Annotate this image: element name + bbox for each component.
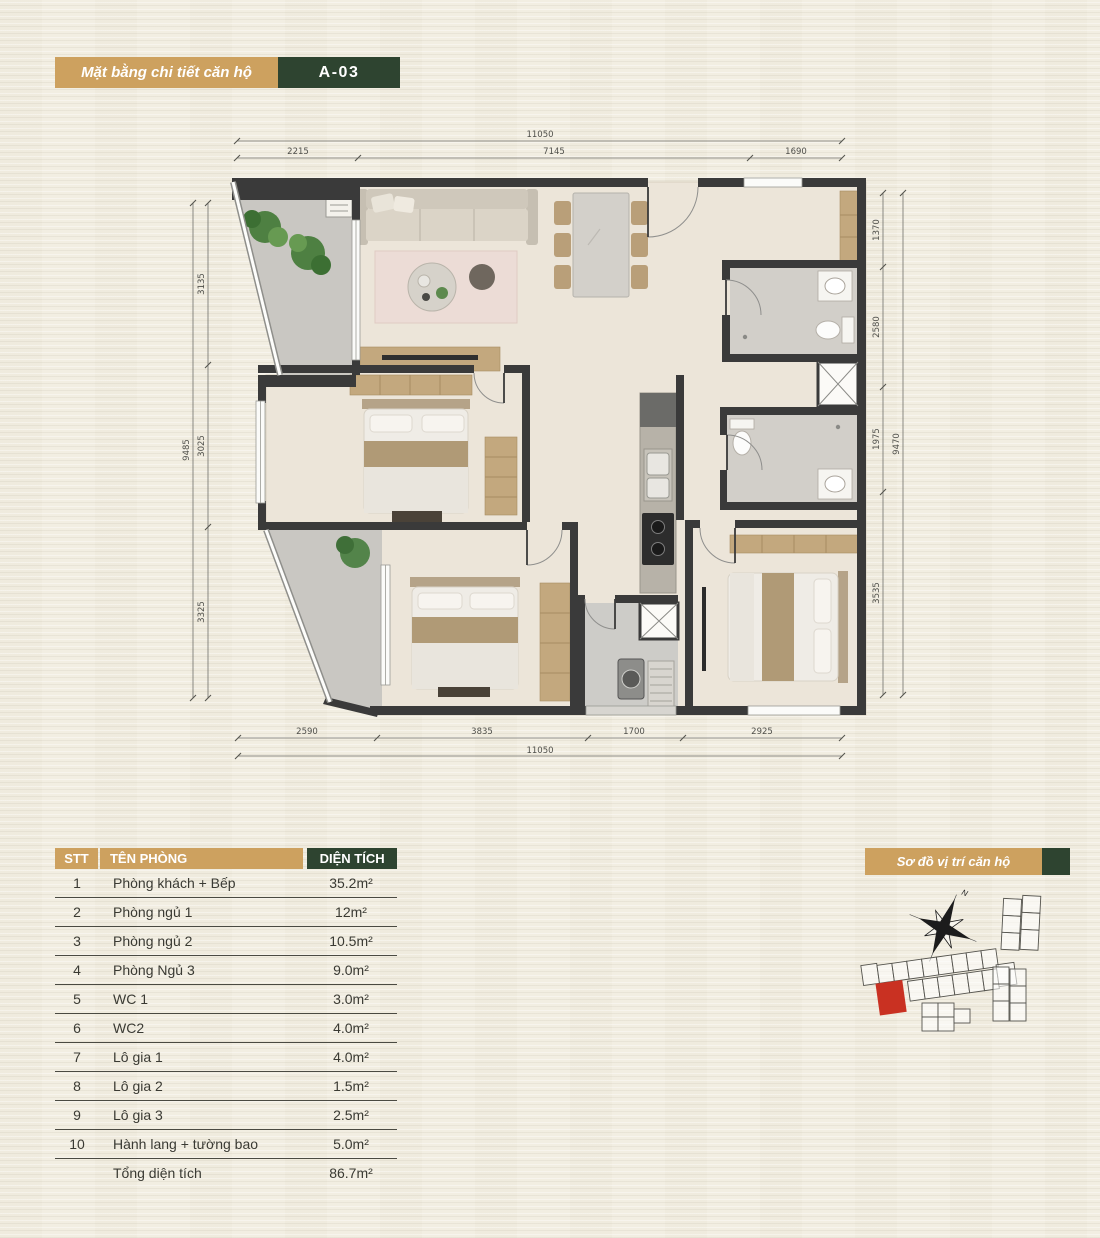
tv [382, 355, 478, 360]
dining-table [554, 193, 648, 297]
wardrobe-2 [540, 583, 570, 701]
site-map-accent [1042, 848, 1070, 875]
dim-bottom-3: 1700 [623, 727, 645, 737]
side-table [469, 264, 495, 290]
building-center [922, 1003, 970, 1031]
table-row: 8Lô gia 21.5m² [55, 1072, 397, 1101]
bedroom-2-furniture [410, 577, 570, 701]
total-label: Tổng diện tích [99, 1165, 305, 1181]
dim-top-1: 2215 [287, 147, 309, 157]
dim-right-4: 3535 [872, 582, 882, 604]
dim-bottom-4: 2925 [751, 727, 773, 737]
table-row: 3Phòng ngủ 210.5m² [55, 927, 397, 956]
kitchen [640, 393, 676, 593]
floor-plan: 11050 2215 7145 1690 2590 3835 1700 2925… [170, 125, 920, 775]
dim-right-2: 2580 [872, 316, 882, 338]
dim-left-2: 3025 [197, 435, 207, 457]
dim-right-total: 9470 [892, 433, 902, 455]
room-area-table: STT TÊN PHÒNG DIỆN TÍCH 1Phòng khách + B… [55, 848, 397, 1187]
unit-code-badge: A-03 [278, 57, 400, 88]
bed-1-bench [392, 511, 442, 522]
bed-1-headboard [362, 399, 470, 409]
tv-bedroom-3 [702, 587, 706, 671]
bed-2-bench [438, 687, 490, 697]
coffee-table [408, 263, 456, 311]
unit-highlight [875, 980, 906, 1015]
building-right-top [1001, 894, 1041, 951]
table-row: 7Lô gia 14.0m² [55, 1043, 397, 1072]
bedroom-3-window [748, 706, 840, 715]
site-map-header: Sơ đồ vị trí căn hộ [865, 848, 1070, 875]
wardrobe-1 [350, 375, 472, 395]
kitchen-sink [647, 453, 669, 475]
fridge [640, 393, 676, 427]
table-row: 2Phòng ngủ 112m² [55, 898, 397, 927]
dim-top-2: 7145 [543, 147, 565, 157]
table-row: 5WC 13.0m² [55, 985, 397, 1014]
entry-closet [840, 191, 858, 261]
site-map: N [850, 885, 1100, 1070]
table-row: 4Phòng Ngủ 39.0m² [55, 956, 397, 985]
site-map-title: Sơ đồ vị trí căn hộ [865, 848, 1042, 875]
page-header: Mặt bằng chi tiết căn hộ A-03 [55, 57, 400, 88]
wc2-toilet [733, 431, 751, 455]
washing-machine [622, 670, 640, 688]
col-header-name: TÊN PHÒNG [100, 848, 303, 869]
table-row: 9Lô gia 32.5m² [55, 1101, 397, 1130]
dresser-1 [485, 437, 517, 515]
dim-bottom-2: 3835 [471, 727, 493, 737]
bed-2-headboard [410, 577, 520, 587]
table-header: STT TÊN PHÒNG DIỆN TÍCH [55, 848, 397, 869]
wc1-toilet [816, 321, 840, 339]
hall-window [744, 178, 802, 187]
dim-right-3: 1975 [872, 428, 882, 450]
table-plant [436, 287, 448, 299]
table-row: 6WC24.0m² [55, 1014, 397, 1043]
dim-bottom-1: 2590 [296, 727, 318, 737]
total-area: 86.7m² [305, 1165, 397, 1181]
dim-left-1: 3135 [197, 273, 207, 295]
dim-top-total: 11050 [526, 130, 553, 140]
col-header-area: DIỆN TÍCH [307, 848, 397, 869]
compass-north-label: N [960, 888, 969, 899]
bed-3-headboard [838, 571, 848, 683]
dim-right-1: 1370 [872, 219, 882, 241]
table-total-row: Tổng diện tích86.7m² [55, 1159, 397, 1187]
table-row: 1Phòng khách + Bếp35.2m² [55, 869, 397, 898]
table-row: 10Hành lang + tường bao5.0m² [55, 1130, 397, 1159]
sofa [356, 189, 538, 245]
dim-left-3: 3325 [197, 601, 207, 623]
wc1-shower-drain [743, 335, 747, 339]
wc2-shower-drain [836, 425, 840, 429]
dim-bottom-total: 11050 [526, 746, 553, 756]
dim-left-total: 9485 [182, 439, 192, 461]
balcony-3-railing [586, 706, 676, 715]
page-title: Mặt bằng chi tiết căn hộ [55, 57, 278, 88]
dim-top-3: 1690 [785, 147, 807, 157]
drying-rack [648, 661, 674, 707]
col-header-stt: STT [55, 848, 98, 869]
